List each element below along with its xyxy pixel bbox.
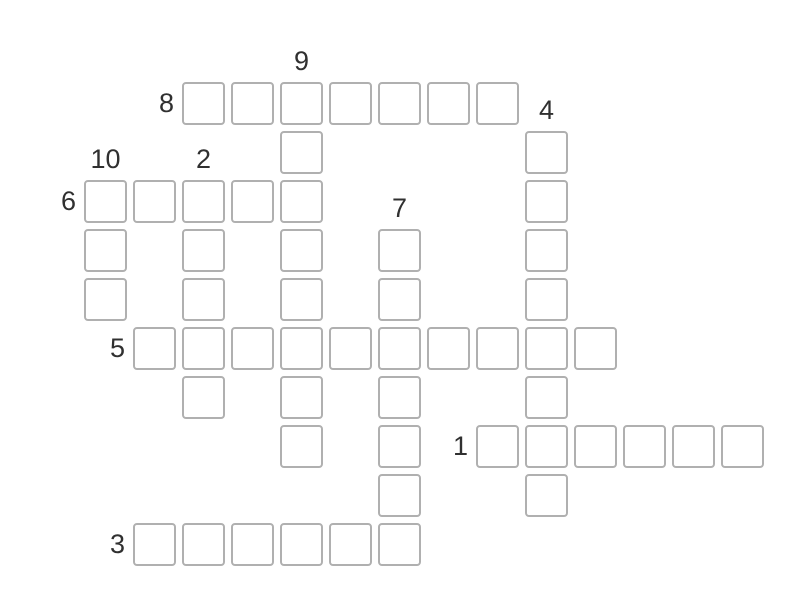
crossword-cell[interactable] [525,425,568,468]
crossword-cell[interactable] [182,278,225,321]
crossword-cell[interactable] [182,229,225,272]
crossword-cell[interactable] [525,229,568,272]
clue-number-4: 4 [525,94,568,126]
clue-number-5: 5 [77,327,125,370]
crossword-cell[interactable] [182,82,225,125]
crossword-cell[interactable] [329,523,372,566]
crossword-cell[interactable] [84,180,127,223]
crossword-cell[interactable] [378,376,421,419]
crossword-cell[interactable] [378,278,421,321]
crossword-cell[interactable] [476,425,519,468]
crossword-cell[interactable] [182,376,225,419]
clue-number-2: 2 [182,143,225,175]
crossword-cell[interactable] [427,327,470,370]
crossword-cell[interactable] [378,229,421,272]
crossword-cell[interactable] [133,327,176,370]
clue-number-7: 7 [378,192,421,224]
crossword-cell[interactable] [378,425,421,468]
crossword-grid: 12345678910 [0,0,800,600]
crossword-cell[interactable] [721,425,764,468]
crossword-cell[interactable] [672,425,715,468]
crossword-cell[interactable] [182,523,225,566]
crossword-cell[interactable] [476,82,519,125]
crossword-cell[interactable] [378,474,421,517]
crossword-cell[interactable] [231,180,274,223]
clue-number-1: 1 [420,425,468,468]
crossword-cell[interactable] [574,425,617,468]
crossword-cell[interactable] [378,523,421,566]
crossword-cell[interactable] [280,82,323,125]
crossword-cell[interactable] [329,327,372,370]
crossword-cell[interactable] [231,327,274,370]
crossword-cell[interactable] [231,82,274,125]
crossword-cell[interactable] [280,131,323,174]
crossword-cell[interactable] [182,180,225,223]
crossword-cell[interactable] [378,82,421,125]
crossword-cell[interactable] [574,327,617,370]
crossword-cell[interactable] [133,523,176,566]
crossword-cell[interactable] [280,376,323,419]
clue-number-6: 6 [28,180,76,223]
crossword-cell[interactable] [525,474,568,517]
crossword-cell[interactable] [84,278,127,321]
crossword-cell[interactable] [525,131,568,174]
crossword-cell[interactable] [280,278,323,321]
crossword-cell[interactable] [476,327,519,370]
crossword-cell[interactable] [280,229,323,272]
crossword-cell[interactable] [329,82,372,125]
crossword-cell[interactable] [525,180,568,223]
crossword-cell[interactable] [280,523,323,566]
crossword-cell[interactable] [378,327,421,370]
crossword-cell[interactable] [427,82,470,125]
crossword-cell[interactable] [525,278,568,321]
crossword-cell[interactable] [182,327,225,370]
clue-number-9: 9 [280,45,323,77]
crossword-cell[interactable] [231,523,274,566]
clue-number-10: 10 [84,143,127,175]
crossword-cell[interactable] [280,327,323,370]
clue-number-8: 8 [126,82,174,125]
crossword-cell[interactable] [525,376,568,419]
crossword-cell[interactable] [133,180,176,223]
crossword-cell[interactable] [84,229,127,272]
crossword-cell[interactable] [280,425,323,468]
crossword-cell[interactable] [525,327,568,370]
crossword-cell[interactable] [280,180,323,223]
clue-number-3: 3 [77,523,125,566]
crossword-cell[interactable] [623,425,666,468]
